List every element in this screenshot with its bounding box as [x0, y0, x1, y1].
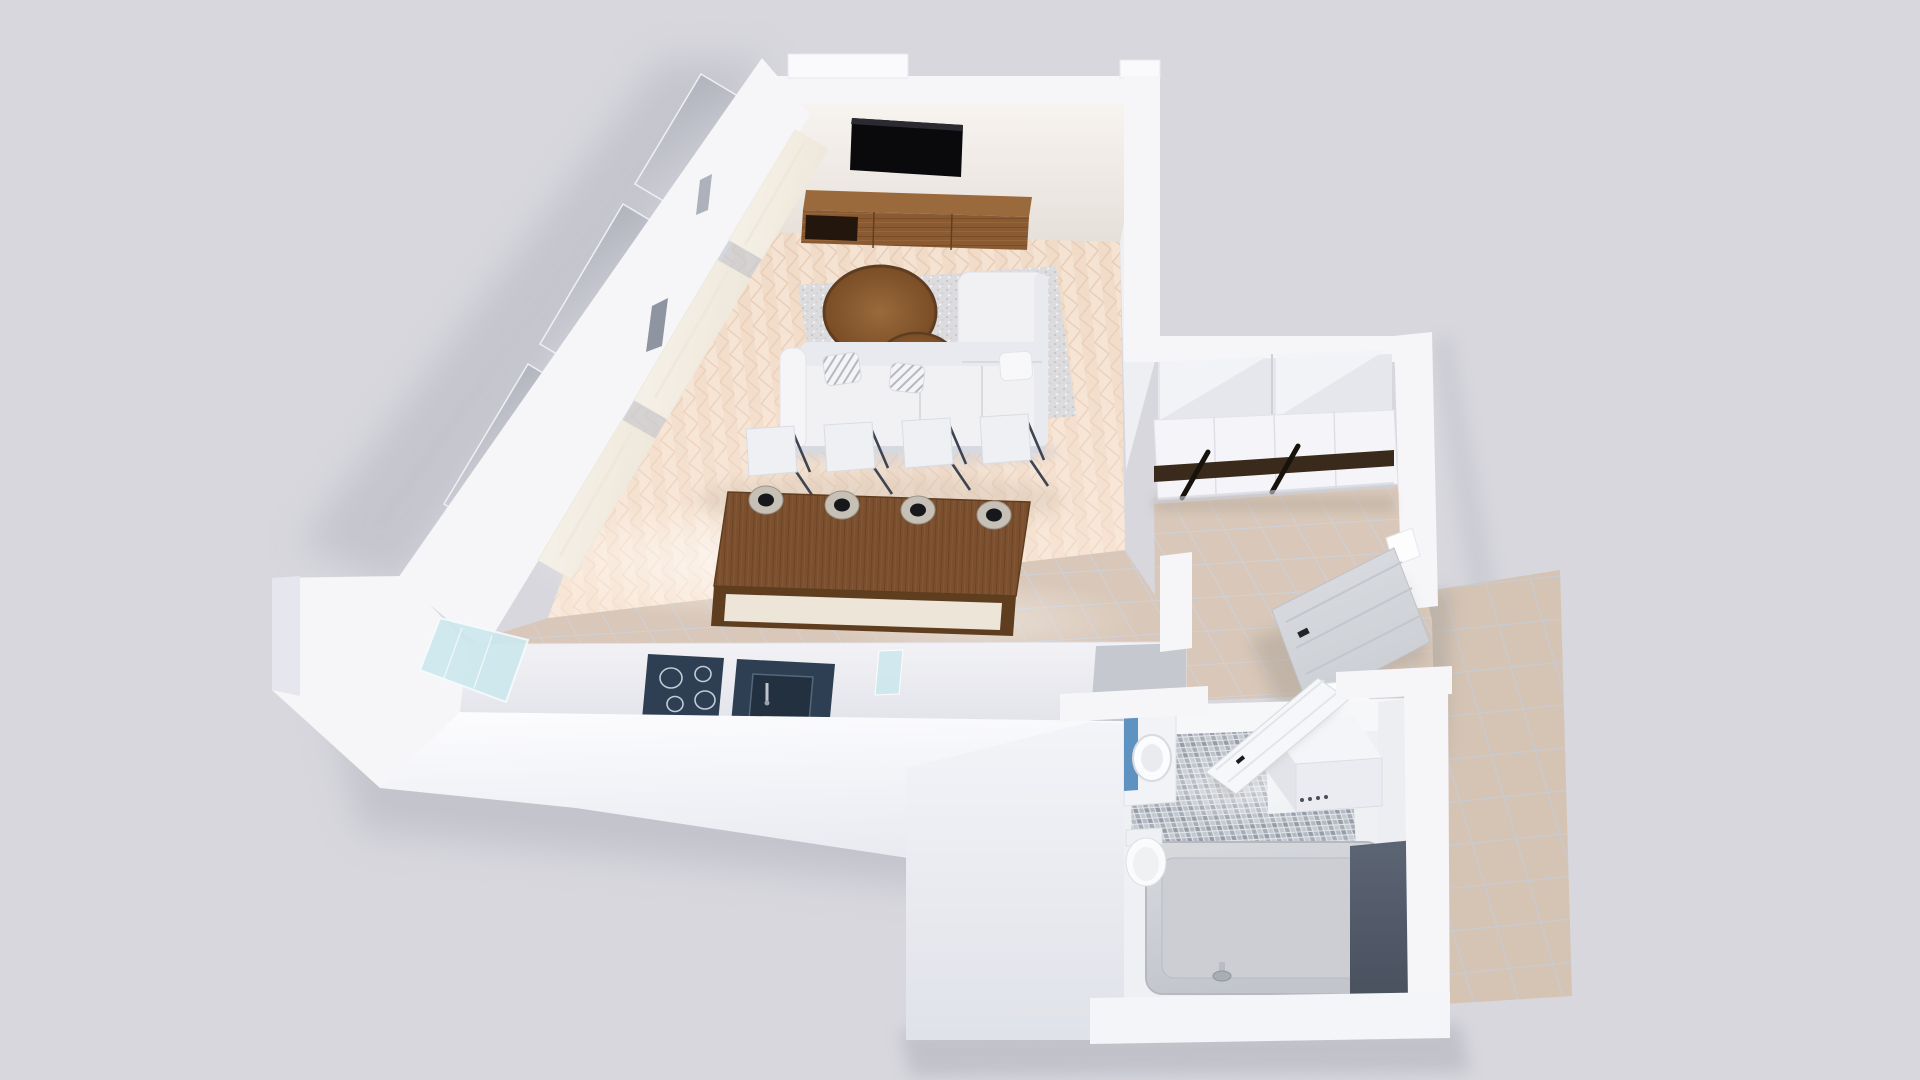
southwest-wedge-shade [272, 576, 300, 696]
chair-seat [980, 414, 1031, 464]
bathtub-drain [1213, 971, 1231, 981]
dining-area [695, 414, 1065, 636]
bathroom-west-wall-face [906, 722, 1128, 1040]
cooktop-surface [642, 654, 724, 723]
lamp-top [910, 504, 926, 517]
north-wall-top [762, 76, 1158, 104]
east-wall-top [1124, 76, 1160, 354]
chair-seat [824, 422, 875, 472]
sink-basin [749, 674, 813, 722]
sofa-chaise-armrest [1034, 274, 1048, 446]
sofa-pillow-white [999, 351, 1033, 381]
media-console [801, 190, 1032, 250]
washbasin-bowl [1141, 744, 1163, 772]
console-shelf-gap [805, 215, 858, 241]
lamp-top [834, 499, 850, 512]
toilet [1126, 828, 1166, 886]
bathroom-south-wall [1090, 992, 1450, 1044]
bathtub-basin [1162, 858, 1366, 978]
bathroom-east-wall [1404, 684, 1450, 1038]
toilet-seat [1133, 847, 1159, 881]
sofa-pillow-striped-2 [889, 362, 926, 393]
lamp-top [986, 509, 1002, 522]
sink-drain [765, 701, 770, 706]
north-wall-parapet [788, 54, 908, 78]
washer-front [1296, 758, 1382, 812]
chair-seat [746, 426, 797, 476]
chair-seat [902, 418, 953, 468]
pendant-lamp [977, 501, 1011, 529]
bathtub [1146, 840, 1414, 1000]
floorplan-render [0, 0, 1920, 1080]
sliding-wardrobe [1154, 350, 1398, 504]
north-wall-corner-block [1120, 60, 1160, 78]
washbasin-unit [1124, 708, 1176, 806]
pendant-lamp [825, 491, 859, 519]
cooktop [642, 654, 724, 723]
bathtub-marble-surround [1350, 840, 1414, 1000]
sofa-pillow-striped-1 [822, 352, 862, 387]
pendant-lamp [749, 486, 783, 514]
glass-counter-insert [875, 650, 903, 695]
lamp-top [758, 494, 774, 507]
apartment-3d-scene [0, 0, 1920, 1080]
kitchen-hall-wall-stub [1160, 552, 1192, 652]
pendant-lamp [901, 496, 935, 524]
